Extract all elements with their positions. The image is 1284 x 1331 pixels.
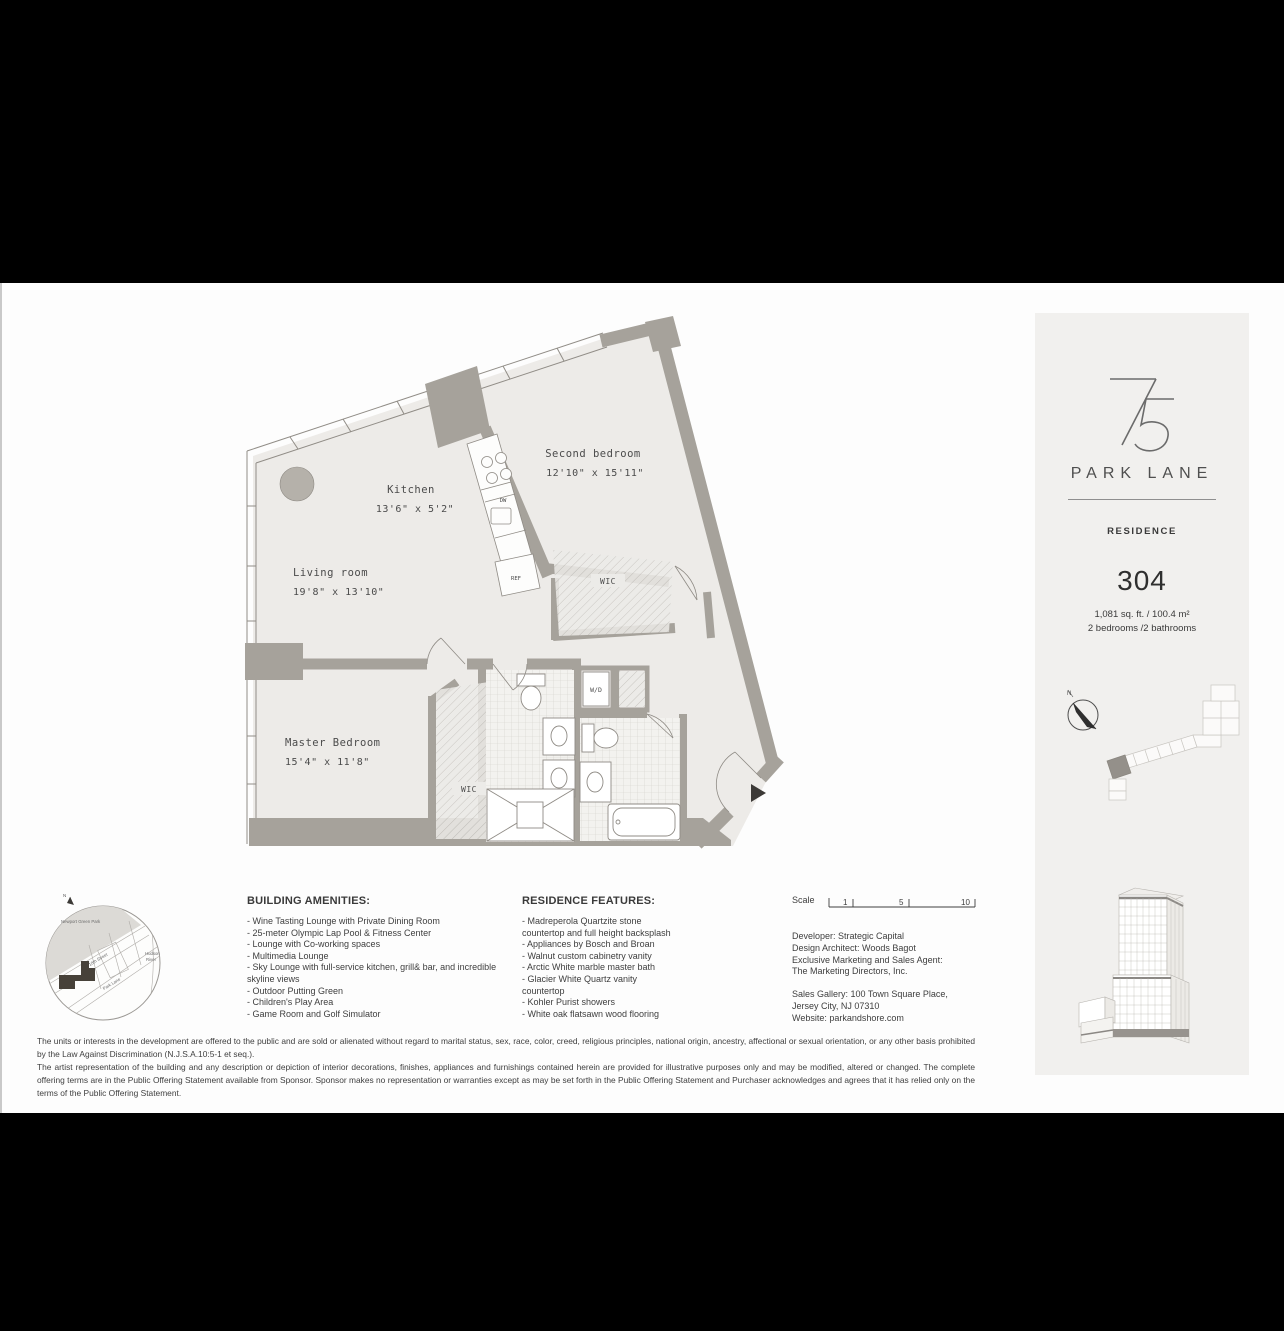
unit-number: 304 [1035, 565, 1249, 597]
label-ref: REF [511, 576, 521, 582]
contact-line: Exclusive Marketing and Sales Agent: [792, 955, 992, 967]
feature-item: - Arctic White marble master bath [522, 962, 680, 974]
label-dw: DW [500, 498, 507, 504]
scale-and-contact-section: Scale 1 5 10 Developer: Strategic Capita… [792, 895, 992, 1025]
feature-item: - Madreperola Quartzite stone countertop… [522, 916, 680, 939]
divider-line [1068, 499, 1216, 500]
contact-line: Jersey City, NJ 07310 [792, 1001, 992, 1013]
svg-text:N: N [63, 893, 66, 898]
amenity-item: - Lounge with Co-working spaces [247, 939, 502, 951]
room-dims-master-bedroom: 15'4" x 11'8" [285, 757, 370, 768]
toilet-tank [582, 724, 594, 752]
scale-bar-graphic: 1 5 10 [825, 895, 981, 911]
structural-column [280, 467, 314, 501]
label-wd: W/D [590, 686, 602, 694]
keyplan [1107, 685, 1239, 800]
room-label-second-bedroom: Second bedroom [545, 448, 641, 460]
kitchen-sink [491, 508, 511, 524]
page-frame: { "colors": { "frame": "#000000", "sheet… [0, 0, 1284, 1331]
contact-line: Website: parkandshore.com [792, 1013, 992, 1025]
room-dims-living: 19'8" x 13'10" [293, 587, 384, 598]
brand-name: PARK LANE [1035, 465, 1249, 483]
label-wic: WIC [600, 577, 616, 586]
map-label-river-2: River [146, 957, 157, 962]
label-wic-master: WIC [461, 785, 477, 794]
toilet-bowl [594, 728, 618, 748]
amenity-item: - 25-meter Olympic Lap Pool & Fitness Ce… [247, 928, 502, 940]
location-map: Newport Green Park Hudson River 18th Str… [37, 883, 169, 1029]
feature-item: - Kohler Purist showers [522, 997, 680, 1009]
amenity-item: - Game Room and Golf Simulator [247, 1009, 502, 1021]
compass-icon: N [1067, 690, 1098, 730]
amenity-item: - Multimedia Lounge [247, 951, 502, 963]
map-label-river-1: Hudson [145, 951, 160, 956]
scale-tick-5: 5 [899, 898, 904, 907]
scale-label: Scale [792, 895, 815, 905]
residence-features-section: RESIDENCE FEATURES: - Madreperola Quartz… [522, 895, 680, 1020]
legal-disclaimer: The units or interests in the developmen… [37, 1035, 975, 1100]
floor-plan: Living room 19'8" x 13'10" Kitchen 13'6"… [245, 316, 785, 864]
toilet-bowl [521, 686, 541, 710]
brochure-sheet: Living room 19'8" x 13'10" Kitchen 13'6"… [0, 283, 1284, 1113]
room-label-living: Living room [293, 567, 368, 579]
room-label-kitchen: Kitchen [387, 484, 435, 496]
contact-line: Developer: Strategic Capital [792, 931, 992, 943]
features-title: RESIDENCE FEATURES: [522, 895, 680, 907]
building-illustration [1067, 885, 1217, 1053]
shower [487, 789, 574, 841]
room-dims-kitchen: 13'6" x 5'2" [376, 504, 454, 515]
contact-line: Design Architect: Woods Bagot [792, 943, 992, 955]
toilet-tank [517, 674, 545, 686]
amenity-item: - Wine Tasting Lounge with Private Dinin… [247, 916, 502, 928]
unit-beds-baths: 2 bedrooms /2 bathrooms [1035, 623, 1249, 634]
scale-tick-1: 1 [843, 898, 848, 907]
scale-tick-10: 10 [961, 898, 970, 907]
amenity-item: - Children's Play Area [247, 997, 502, 1009]
residence-label: RESIDENCE [1035, 526, 1249, 537]
building-amenities-section: BUILDING AMENITIES: - Wine Tasting Loung… [247, 895, 502, 1020]
contact-block: Developer: Strategic Capital Design Arch… [792, 931, 992, 1025]
disclaimer-paragraph-1: The units or interests in the developmen… [37, 1035, 975, 1061]
keyplan-and-compass: N [1043, 671, 1243, 801]
brand-logo-75 [1082, 365, 1202, 457]
contact-line: Sales Gallery: 100 Town Square Place, [792, 989, 992, 1001]
map-north-icon: N [63, 893, 74, 905]
feature-item: - Walnut custom cabinetry vanity [522, 951, 680, 963]
residence-info-card: PARK LANE RESIDENCE 304 1,081 sq. ft. / … [1035, 313, 1249, 1075]
scale-bar: Scale 1 5 10 [792, 895, 992, 911]
amenity-item: - Outdoor Putting Green [247, 986, 502, 998]
amenity-item: - Sky Lounge with full-service kitchen, … [247, 962, 502, 985]
bathtub [608, 804, 680, 840]
feature-item: - Appliances by Bosch and Broan [522, 939, 680, 951]
room-label-master-bedroom: Master Bedroom [285, 737, 381, 749]
feature-item: - White oak flatsawn wood flooring [522, 1009, 680, 1021]
amenities-title: BUILDING AMENITIES: [247, 895, 502, 907]
feature-item: - Glacier White Quartz vanity countertop [522, 974, 680, 997]
contact-line: The Marketing Directors, Inc. [792, 966, 992, 978]
unit-area: 1,081 sq. ft. / 100.4 m² [1035, 609, 1249, 620]
map-label-park: Newport Green Park [61, 919, 101, 924]
refrigerator [495, 554, 540, 596]
room-dims-second-bedroom: 12'10" x 15'11" [546, 468, 644, 479]
disclaimer-paragraph-2: The artist representation of the buildin… [37, 1061, 975, 1100]
